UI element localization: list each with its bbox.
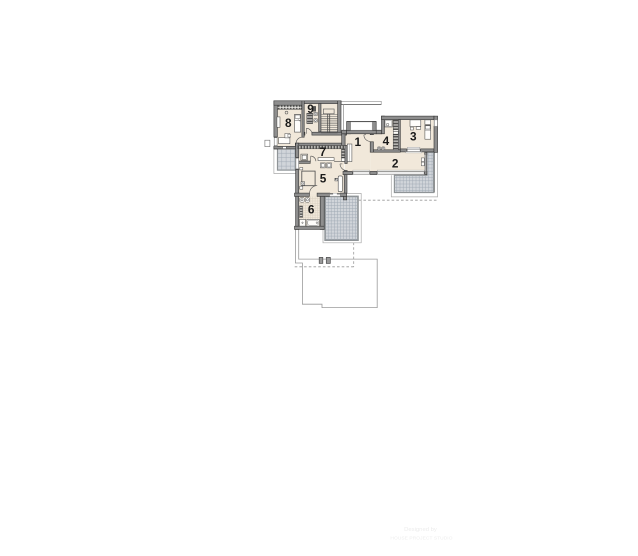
svg-text:7: 7 <box>320 145 327 159</box>
svg-text:4: 4 <box>383 134 390 148</box>
svg-text:Designed by: Designed by <box>404 527 437 533</box>
svg-text:HOUSE PROJECT STUDIO: HOUSE PROJECT STUDIO <box>390 536 452 542</box>
svg-text:6: 6 <box>308 202 315 216</box>
svg-text:2: 2 <box>392 157 399 171</box>
svg-text:1: 1 <box>355 135 362 149</box>
svg-text:3: 3 <box>410 130 417 144</box>
svg-text:9: 9 <box>307 102 314 116</box>
svg-text:5: 5 <box>320 172 327 186</box>
svg-text:8: 8 <box>285 116 292 130</box>
